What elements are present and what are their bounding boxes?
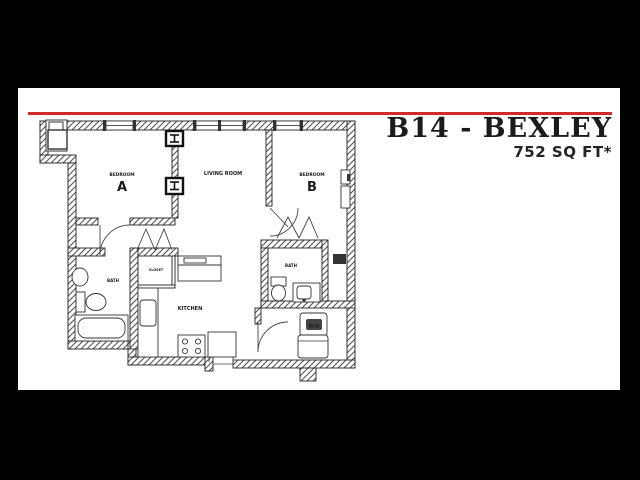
kitchen-sink-icon xyxy=(140,300,156,326)
bathtub-inner xyxy=(78,318,125,338)
room-label-bedroomB: BEDROOM xyxy=(299,172,324,178)
wall-bottom-right xyxy=(233,360,355,368)
bath1-fixtures xyxy=(72,268,128,341)
room-letter-A: A xyxy=(117,180,127,195)
door-bedroomB xyxy=(270,208,298,236)
wall-bath1-kitchen xyxy=(130,248,138,349)
bath2-fixtures xyxy=(271,277,320,302)
window-bedroomB xyxy=(273,120,303,131)
room-label-kitchen: KITCHEN xyxy=(178,306,203,312)
plan-sheet: B14 - BEXLEY 752 SQ FT* xyxy=(18,88,620,390)
wall-bath1-top xyxy=(68,248,105,256)
room-label-living: LIVING ROOM xyxy=(204,171,242,177)
letterbox-bottom xyxy=(0,390,640,480)
partition-bedroomB-living xyxy=(266,130,272,206)
hall-closet xyxy=(138,256,175,288)
wall-bedroomA-bottom-right xyxy=(130,218,175,225)
room-label-bath2: BATH xyxy=(285,263,297,268)
sink-icon xyxy=(72,268,88,286)
wardrobe-icon xyxy=(341,186,350,208)
toilet-tank xyxy=(76,292,85,312)
room-label-closet: CLOSET xyxy=(149,268,164,272)
room-label-bath1: BATH xyxy=(107,278,119,283)
fridge-icon xyxy=(208,332,236,357)
wall-bath2-top xyxy=(261,240,325,248)
room-label-bedroomA: BEDROOM xyxy=(109,172,134,178)
letterbox-top xyxy=(0,0,640,88)
wall-bottom-kitchen xyxy=(128,357,207,365)
bifold-closet-doors xyxy=(137,229,172,250)
washer-dryer: W/D xyxy=(298,313,328,358)
room-letter-B: B xyxy=(307,180,317,195)
wall-utility-left xyxy=(255,308,261,324)
door-utility xyxy=(258,322,288,352)
toilet-icon xyxy=(272,285,286,301)
screenshot-root: { "header": { "title": "B14 - BEXLEY", "… xyxy=(0,0,640,480)
room-label-wd: W/D xyxy=(309,324,320,330)
wall-closet2-partition xyxy=(322,240,328,301)
windows xyxy=(103,120,303,131)
wall-foot xyxy=(300,368,316,381)
window-bedroomA xyxy=(103,120,136,131)
wall-bath2-left xyxy=(261,248,268,308)
closet-shelf xyxy=(333,254,346,264)
column-icon xyxy=(166,131,183,146)
toilet-icon xyxy=(86,294,106,311)
letterbox-right xyxy=(620,88,640,390)
column-icon xyxy=(166,178,183,194)
bifold-bedroomB-closet xyxy=(277,217,318,238)
wall-right xyxy=(347,121,355,368)
letterbox-left xyxy=(0,88,18,390)
window-living xyxy=(193,120,246,131)
sink-icon xyxy=(297,286,311,299)
wall-bottom-left xyxy=(68,341,136,349)
wall-left-step xyxy=(40,155,76,163)
floor-plan: W/D BEDROOM A LIVING ROOM BEDROOM B BATH… xyxy=(18,88,620,390)
stove-icon xyxy=(178,335,205,357)
island-sink xyxy=(184,258,206,263)
wall-bedroomA-bottom-left xyxy=(76,218,98,225)
utility-shaft xyxy=(46,120,67,151)
